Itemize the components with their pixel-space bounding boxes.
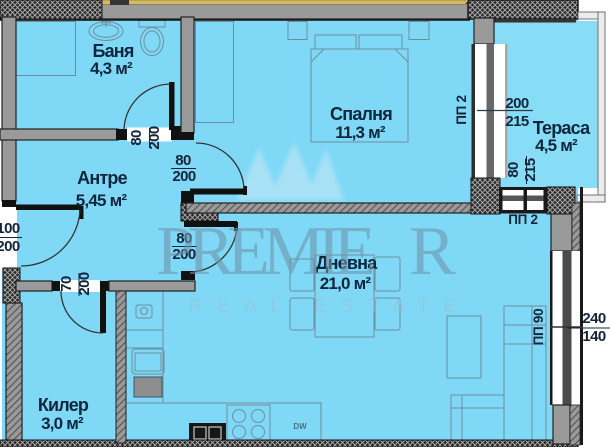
- svg-text:5,45 м²: 5,45 м²: [76, 191, 128, 210]
- svg-text:Баня: Баня: [92, 41, 133, 61]
- svg-text:ПП 90: ПП 90: [531, 309, 546, 346]
- svg-text:PREMIE: PREMIE: [156, 213, 376, 290]
- svg-text:REAL ESTATE: REAL ESTATE: [189, 295, 471, 316]
- svg-text:80: 80: [128, 130, 145, 146]
- svg-text:200: 200: [172, 168, 195, 185]
- svg-text:100: 100: [0, 220, 20, 237]
- svg-text:200: 200: [76, 272, 93, 295]
- svg-text:200: 200: [505, 95, 528, 112]
- svg-text:215: 215: [505, 113, 528, 130]
- svg-text:200: 200: [0, 238, 20, 255]
- svg-text:Антре: Антре: [77, 168, 127, 188]
- svg-text:4,3 м²: 4,3 м²: [90, 59, 133, 78]
- svg-text:70: 70: [58, 276, 75, 292]
- svg-text:ПП 2: ПП 2: [508, 212, 537, 227]
- svg-text:Спалня: Спалня: [330, 104, 392, 124]
- svg-text:80: 80: [505, 162, 522, 178]
- svg-text:80: 80: [175, 152, 191, 169]
- svg-text:3,0 м²: 3,0 м²: [41, 414, 84, 433]
- svg-text:Килер: Килер: [38, 395, 89, 415]
- svg-text:200: 200: [146, 126, 163, 149]
- svg-text:ПП 2: ПП 2: [454, 95, 469, 124]
- svg-text:DW: DW: [293, 422, 307, 431]
- svg-text:140: 140: [582, 328, 605, 345]
- svg-text:R: R: [409, 213, 456, 290]
- svg-text:240: 240: [582, 310, 605, 327]
- svg-text:11,3 м²: 11,3 м²: [335, 123, 386, 142]
- svg-text:Тераса: Тераса: [533, 118, 591, 138]
- svg-text:4,5 м²: 4,5 м²: [535, 136, 578, 155]
- svg-text:215: 215: [522, 158, 539, 181]
